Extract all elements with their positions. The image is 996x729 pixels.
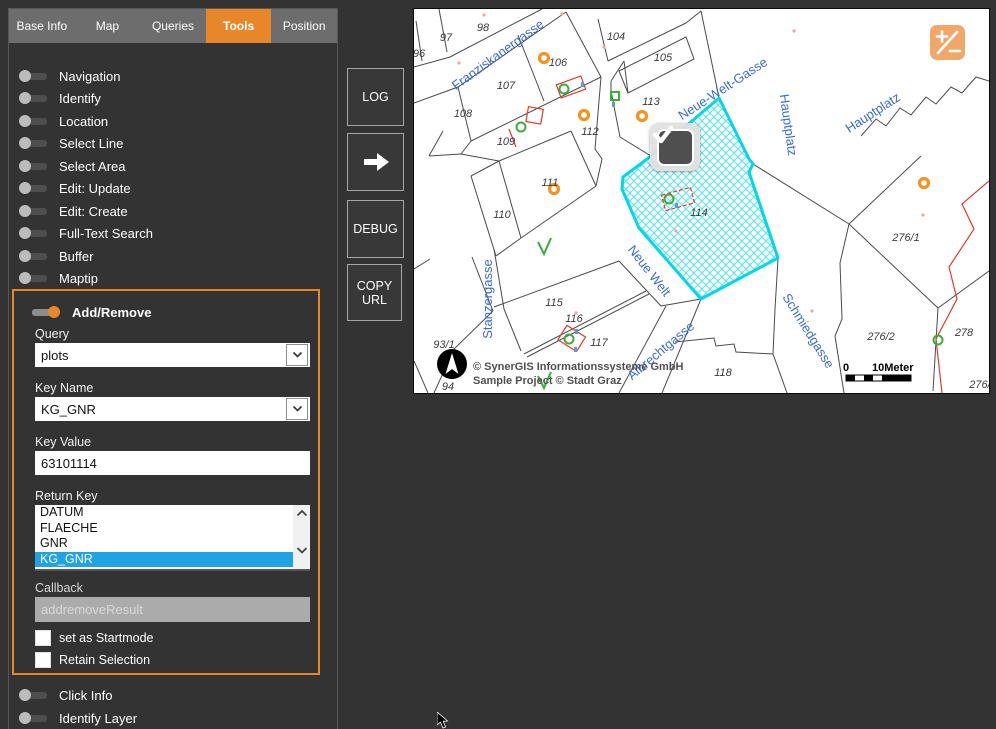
tools-panel: Base Info Map Queries Tools Position Nav… — [8, 8, 338, 729]
parcel-label: 276/2 — [866, 331, 895, 343]
parcel-label: 110 — [493, 209, 511, 221]
parcel-label: 105 — [654, 52, 673, 64]
query-label: Query — [35, 327, 69, 341]
scale-label: 10Meter — [872, 362, 914, 374]
confirm-selection-button[interactable] — [650, 123, 700, 171]
query-select[interactable]: plots — [35, 343, 310, 367]
arrow-right-icon — [361, 149, 391, 175]
parcel-label: 111 — [542, 177, 559, 189]
scale-bar: 0 10Meter — [843, 362, 914, 381]
tool-navigation[interactable]: Navigation — [19, 65, 120, 87]
keyname-label: Key Name — [35, 381, 93, 395]
parcel-label: 94 — [442, 381, 454, 393]
street-label: Hauptplatz — [843, 89, 903, 135]
query-value: plots — [41, 348, 68, 363]
toggle-off-icon — [19, 205, 48, 217]
north-compass-icon — [437, 349, 467, 379]
listbox-option[interactable]: GNR — [35, 536, 310, 552]
copyright-line1: © SynerGIS Informationssysteme GmbH — [473, 361, 683, 373]
tool-click-info[interactable]: Click Info — [19, 684, 112, 706]
parcel-label: 96 — [414, 48, 426, 60]
tool-label: Click Info — [59, 688, 112, 703]
parcel-label: 118 — [714, 367, 732, 379]
toggle-off-icon — [19, 137, 48, 149]
toggle-off-icon — [19, 160, 48, 172]
mouse-cursor — [437, 712, 451, 729]
tool-label: Identify Layer — [59, 711, 137, 726]
tool-addremove[interactable]: Add/Remove — [32, 301, 151, 323]
toggle-off-icon — [19, 689, 48, 701]
parcel-label: 276/1 — [891, 232, 920, 244]
keyvalue-value: 63101114 — [41, 456, 97, 471]
street-label: Schmiedgasse — [779, 291, 837, 371]
tool-location[interactable]: Location — [19, 110, 108, 132]
copy-url-button[interactable]: COPY URL — [347, 264, 402, 321]
parcel-label: 115 — [545, 297, 563, 309]
checkbox-unchecked[interactable] — [35, 630, 51, 646]
street-label: Hauptplatz — [777, 93, 801, 157]
keyvalue-input[interactable]: 63101114 — [35, 451, 310, 475]
tool-identify-layer[interactable]: Identify Layer — [19, 707, 137, 729]
parcel-label: 112 — [581, 126, 599, 138]
addremove-group: Add/Remove Query plots Key Name KG_GNR K… — [12, 289, 320, 675]
parcel-labels: 96 97 98 104 105 106 107 108 109 110 111… — [414, 22, 989, 393]
toggle-off-icon — [19, 272, 48, 284]
tool-edit-update[interactable]: Edit: Update — [19, 177, 131, 199]
tool-label: Navigation — [59, 69, 120, 84]
listbox-option[interactable]: DATUM — [35, 505, 310, 521]
tool-label: Full-Text Search — [59, 226, 153, 241]
parcel-label: 107 — [497, 80, 516, 92]
returnkey-label: Return Key — [35, 489, 98, 503]
chevron-down-icon[interactable] — [286, 344, 308, 366]
tab-tools[interactable]: Tools — [206, 9, 272, 43]
checkbox-label: set as Startmode — [59, 631, 154, 645]
tool-maptip[interactable]: Maptip — [19, 267, 98, 289]
toggle-off-icon — [19, 70, 48, 82]
toggle-off-icon — [19, 250, 48, 262]
map-copyright: © SynerGIS Informationssysteme GmbH Samp… — [473, 361, 683, 387]
tool-label: Select Line — [59, 136, 123, 151]
parcel-label: 276/ — [968, 379, 989, 391]
parcel-label: 98 — [477, 22, 490, 34]
returnkey-listbox[interactable]: DATUM FLAECHE GNR KG_GNR — [35, 505, 310, 571]
addremove-title: Add/Remove — [72, 305, 151, 320]
tool-label: Edit: Create — [59, 204, 128, 219]
parcel-label: 106 — [549, 57, 568, 69]
debug-button[interactable]: DEBUG — [347, 200, 404, 258]
tool-edit-create[interactable]: Edit: Create — [19, 200, 128, 222]
keyname-select[interactable]: KG_GNR — [35, 397, 310, 421]
parcel-label: 109 — [497, 136, 515, 148]
checkbox-label: Retain Selection — [59, 653, 150, 667]
toggle-off-icon — [19, 92, 48, 104]
tool-select-area[interactable]: Select Area — [19, 155, 126, 177]
street-label: Albrechtgasse — [624, 318, 697, 382]
parcel-label: 97 — [440, 32, 453, 44]
tool-identify[interactable]: Identify — [19, 87, 101, 109]
toggle-off-icon — [19, 182, 48, 194]
keyvalue-label: Key Value — [35, 435, 91, 449]
parcel-label: 108 — [454, 108, 473, 120]
tab-bar: Base Info Map Queries Tools Position — [9, 9, 337, 43]
scroll-up-icon — [296, 509, 308, 518]
tool-label: Location — [59, 114, 108, 129]
parcel-label: 116 — [565, 313, 583, 325]
parcel-label: 117 — [590, 337, 608, 349]
tab-base-info[interactable]: Base Info — [9, 9, 75, 43]
tab-queries[interactable]: Queries — [140, 9, 206, 43]
plus-minus-icon — [930, 25, 965, 60]
log-button[interactable]: LOG — [347, 68, 404, 126]
forward-button[interactable] — [347, 133, 404, 191]
toggle-off-icon — [19, 227, 48, 239]
tab-map[interactable]: Map — [75, 9, 141, 43]
listbox-option[interactable]: FLAECHE — [35, 521, 310, 537]
checkbox-unchecked[interactable] — [35, 652, 51, 668]
toggle-on-icon — [32, 306, 61, 318]
tool-label: Select Area — [59, 159, 126, 174]
parcel-label: 104 — [607, 31, 625, 43]
tool-label: Edit: Update — [59, 181, 131, 196]
toggle-off-icon — [19, 712, 48, 724]
copyright-line2: Sample Project © Stadt Graz — [473, 375, 622, 387]
tool-label: Identify — [59, 91, 101, 106]
listbox-option-selected[interactable]: KG_GNR — [35, 552, 310, 568]
tool-label: Buffer — [59, 249, 93, 264]
retain-selection-checkbox-row[interactable]: Retain Selection — [35, 652, 150, 668]
parcel-label: 114 — [690, 207, 708, 219]
startmode-checkbox-row[interactable]: set as Startmode — [35, 630, 154, 646]
tool-select-line[interactable]: Select Line — [19, 132, 123, 154]
chevron-down-icon[interactable] — [286, 398, 308, 420]
map-canvas[interactable]: 96 97 98 104 105 106 107 108 109 110 111… — [413, 8, 990, 394]
add-remove-mode-button[interactable] — [930, 25, 965, 60]
scale-zero: 0 — [843, 362, 849, 374]
tool-buffer[interactable]: Buffer — [19, 245, 93, 267]
tool-label: Maptip — [59, 271, 98, 286]
toggle-off-icon — [19, 115, 48, 127]
parcel-label: 278 — [954, 327, 974, 339]
scroll-down-icon — [296, 546, 308, 555]
parcel-label: 113 — [642, 96, 660, 108]
callback-label: Callback — [35, 581, 83, 595]
keyname-value: KG_GNR — [41, 402, 96, 417]
checkmark-icon — [657, 129, 694, 166]
tool-fulltext-search[interactable]: Full-Text Search — [19, 222, 153, 244]
callback-input — [35, 597, 310, 622]
street-label: Stanzergasse — [480, 259, 495, 339]
listbox-scrollbar[interactable] — [293, 505, 310, 569]
tab-position[interactable]: Position — [271, 9, 337, 43]
